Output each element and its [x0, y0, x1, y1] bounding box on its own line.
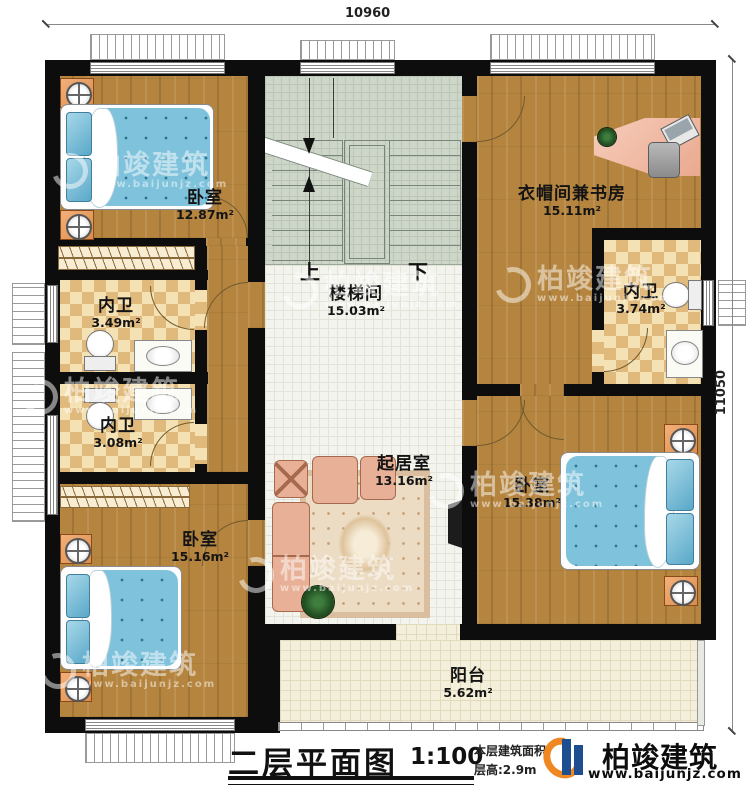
wardrobe-top-left: [58, 246, 195, 270]
room-area: 13.16m²: [375, 474, 433, 487]
wall-bath2-south: [45, 472, 248, 484]
label-cloakroom-study: 衣帽间兼书房 15.11m²: [518, 186, 626, 217]
drawing-scale: 1:100: [410, 744, 483, 770]
nightstand: [60, 210, 94, 240]
wall-hall-right: [462, 76, 477, 624]
wall-left: [45, 60, 60, 733]
room-name: 阳台: [443, 668, 492, 686]
pillow: [66, 620, 90, 664]
dimension-top-value: 10960: [345, 6, 390, 21]
label-bath-right: 内卫 3.74m²: [616, 284, 665, 315]
room-name: 卧室: [503, 478, 561, 496]
sink-basin: [671, 341, 699, 365]
stair-flight-right: [390, 140, 461, 250]
window-left-lower: [47, 415, 58, 515]
window-left-upper: [47, 285, 58, 343]
plant-icon: [302, 586, 334, 618]
room-name: 起居室: [375, 456, 433, 474]
room-name: 衣帽间兼书房: [518, 186, 626, 204]
pillow: [666, 459, 694, 511]
sink-basin: [146, 346, 180, 366]
door-gap-bedroom-right: [462, 400, 477, 446]
door-gap-lobby: [248, 282, 265, 328]
dimension-line-right: [732, 60, 733, 733]
label-living: 起居室 13.16m²: [375, 456, 433, 487]
wardrobe-bottom-left: [60, 486, 190, 508]
plant-icon: [598, 128, 616, 146]
armchair: [312, 456, 358, 504]
room-name: 内卫: [616, 284, 665, 302]
room-area: 15.38m²: [503, 496, 561, 509]
room-name: 卧室: [176, 190, 234, 208]
dimension-line-top: [45, 24, 716, 25]
ledge-top-right: [490, 34, 655, 60]
room-area: 3.74m²: [616, 302, 665, 315]
toilet-bowl: [662, 282, 690, 308]
label-bedroom-right: 卧室 15.38m²: [503, 478, 561, 509]
wall-study-bedroom-divider: [462, 384, 716, 396]
wall-right: [701, 60, 716, 640]
window-bottom-left: [85, 719, 235, 731]
pillow: [666, 513, 694, 565]
door-gap-bath2: [195, 424, 207, 464]
floor-plan: 上 下: [0, 0, 750, 799]
wall-bath-divider: [45, 372, 208, 384]
stair-up-label: 上: [300, 256, 320, 285]
ledge-top-left: [90, 34, 225, 60]
nightstand: [664, 576, 698, 606]
window-right-bath: [703, 280, 714, 326]
room-area: 12.87m²: [176, 208, 234, 221]
wall-bedroom-bl-right: [248, 624, 280, 733]
pillow: [66, 158, 92, 202]
label-balcony: 阳台 5.62m²: [443, 668, 492, 699]
toilet-tank: [84, 388, 116, 403]
label-bedroom-bottom-left: 卧室 15.16m²: [171, 532, 229, 563]
room-name: 内卫: [91, 298, 140, 316]
nightstand: [60, 672, 92, 702]
room-area: 15.11m²: [518, 204, 626, 217]
stair-landing: [344, 140, 390, 264]
pillow: [66, 112, 92, 156]
room-area: 15.03m²: [327, 304, 385, 317]
brand-building-icon: [574, 745, 583, 775]
wall-bottom-right: [262, 624, 716, 640]
room-name: 内卫: [93, 418, 142, 436]
door-gap-bedroom-bl: [248, 520, 265, 566]
door-gap-study: [462, 96, 477, 142]
stair-arrow-down-icon: [303, 138, 315, 154]
ledge-top-stair: [300, 40, 395, 60]
label-bath-left-lower: 内卫 3.08m²: [93, 418, 142, 449]
room-name: 卧室: [171, 532, 229, 550]
label-bedroom-top-left: 卧室 12.87m²: [176, 190, 234, 221]
door-gap-bedroom-tl: [206, 238, 246, 246]
wall-bath-right-north: [604, 228, 704, 240]
floor-lobby: [207, 246, 248, 472]
brand-url: www.baijunjz.com: [588, 766, 742, 782]
side-table: [274, 460, 308, 498]
sink-basin: [146, 394, 180, 414]
ledge-left-lower: [12, 352, 45, 522]
label-bath-left-upper: 内卫 3.49m²: [91, 298, 140, 329]
room-name: 楼梯间: [327, 286, 385, 304]
stair-arrow-up-icon: [303, 176, 315, 192]
window-top-stair: [300, 62, 395, 74]
title-underline: [228, 776, 474, 785]
room-area: 3.08m²: [93, 436, 142, 449]
balcony-wall-right: [697, 640, 705, 726]
room-area: 15.16m²: [171, 550, 229, 563]
stair-run-line-2: [333, 78, 334, 138]
toilet-tank: [688, 280, 702, 310]
label-stair-hall: 楼梯间 15.03m²: [327, 286, 385, 317]
balcony-railing: [278, 722, 704, 731]
room-area: 3.49m²: [91, 316, 140, 329]
tv: [448, 500, 462, 548]
toilet-tank: [84, 356, 116, 371]
dimension-right-value: 11050: [714, 370, 729, 415]
nightstand: [664, 424, 698, 454]
stair-run-line: [309, 78, 310, 262]
window-top-right: [490, 62, 655, 74]
pillow: [66, 574, 90, 618]
door-gap-study-bedroom: [520, 384, 564, 396]
ledge-bottom-left: [85, 733, 235, 763]
brand-building-icon: [562, 739, 571, 775]
door-gap-balcony: [396, 624, 460, 640]
ledge-left-upper: [12, 283, 45, 345]
wall-bath1-north: [45, 270, 208, 280]
rug-medallion: [338, 514, 392, 574]
room-area: 5.62m²: [443, 686, 492, 699]
nightstand: [60, 534, 92, 564]
stair-down-label: 下: [408, 256, 428, 285]
height-note: 层高:2.9m: [474, 761, 537, 780]
door-gap-bath-right: [592, 330, 604, 372]
window-top-left: [90, 62, 225, 74]
area-note: 本层建筑面积:: [474, 742, 551, 761]
desk-chair: [648, 142, 680, 178]
toilet-bowl: [86, 330, 114, 358]
